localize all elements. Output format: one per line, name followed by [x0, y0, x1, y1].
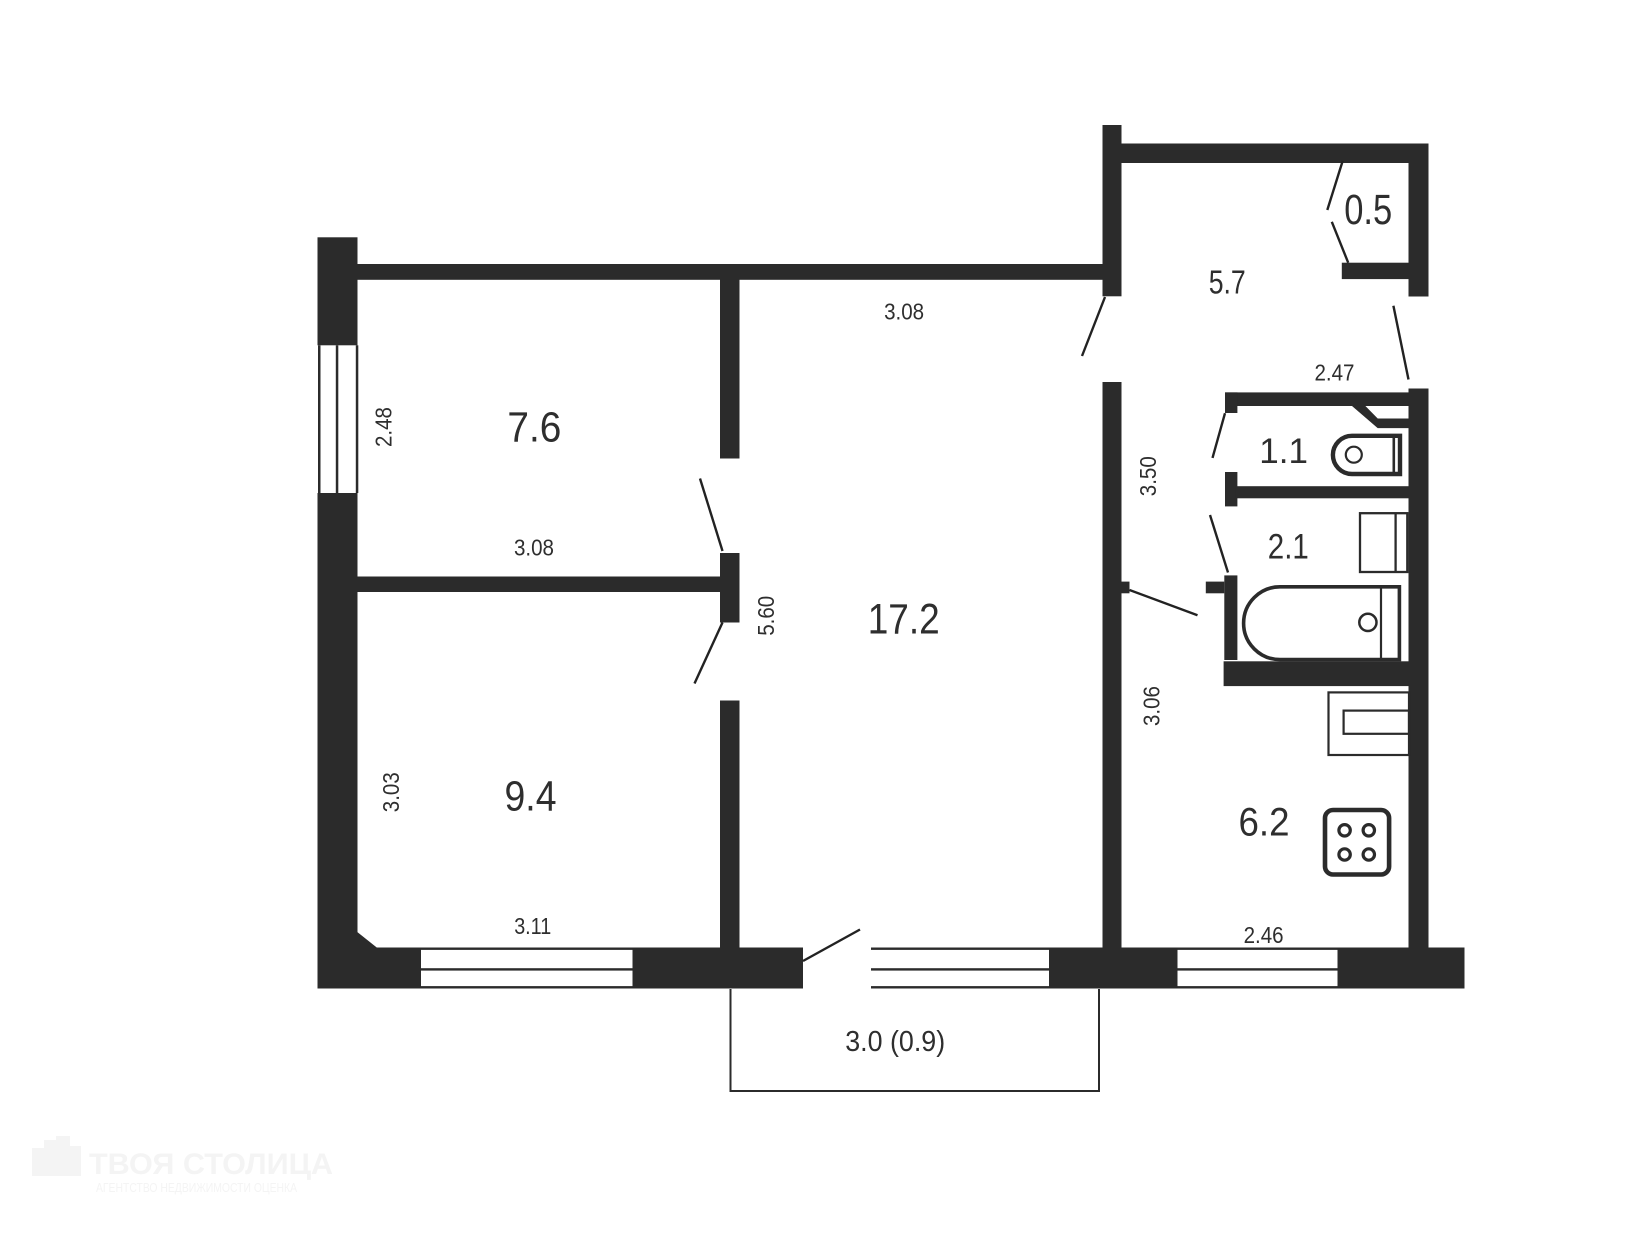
- svg-text:3.0 (0.9): 3.0 (0.9): [845, 1026, 945, 1058]
- svg-text:9.4: 9.4: [505, 774, 557, 821]
- svg-text:3.08: 3.08: [514, 535, 554, 561]
- svg-text:3.50: 3.50: [1135, 456, 1161, 496]
- svg-text:5.60: 5.60: [753, 596, 779, 636]
- svg-text:7.6: 7.6: [507, 405, 561, 452]
- svg-text:3.08: 3.08: [884, 298, 924, 324]
- svg-text:6.2: 6.2: [1239, 801, 1290, 845]
- svg-text:5.7: 5.7: [1209, 264, 1246, 301]
- svg-text:АГЕНТСТВО НЕДВИЖИМОСТИ ОЦЕНКА: АГЕНТСТВО НЕДВИЖИМОСТИ ОЦЕНКА: [96, 1180, 297, 1195]
- svg-text:3.06: 3.06: [1139, 686, 1165, 726]
- svg-text:3.03: 3.03: [378, 772, 404, 812]
- svg-text:17.2: 17.2: [868, 597, 940, 644]
- svg-text:ТВОЯ СТОЛИЦА: ТВОЯ СТОЛИЦА: [89, 1148, 333, 1181]
- svg-text:2.47: 2.47: [1315, 360, 1355, 386]
- svg-text:2.1: 2.1: [1268, 528, 1309, 567]
- svg-text:2.48: 2.48: [370, 407, 396, 447]
- svg-text:0.5: 0.5: [1344, 187, 1392, 234]
- svg-text:3.11: 3.11: [514, 913, 551, 939]
- svg-text:2.46: 2.46: [1244, 922, 1284, 948]
- svg-text:1.1: 1.1: [1259, 432, 1308, 471]
